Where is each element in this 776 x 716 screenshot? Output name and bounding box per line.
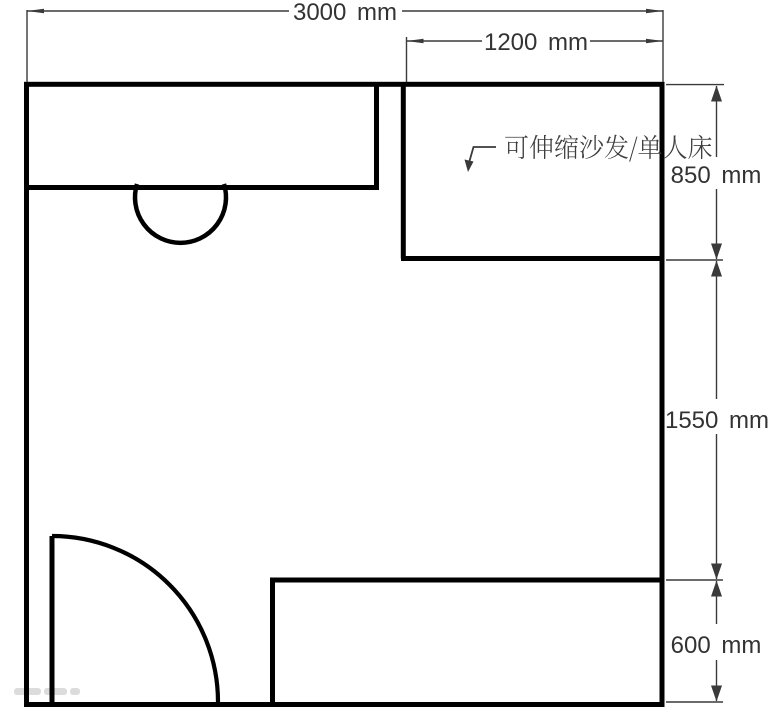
svg-text:1200 mm: 1200 mm [484,29,588,56]
svg-text:1550 mm: 1550 mm [665,407,769,434]
svg-text:600 mm: 600 mm [671,632,762,659]
svg-text:850 mm: 850 mm [671,162,762,189]
svg-text:3000 mm: 3000 mm [293,0,397,26]
